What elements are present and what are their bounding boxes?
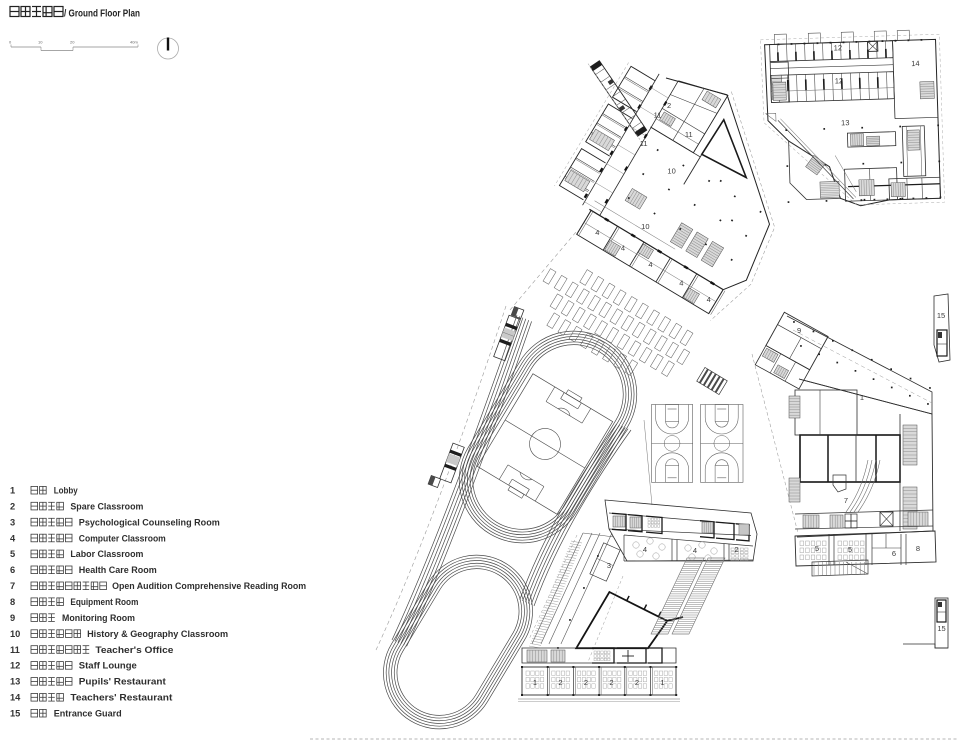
svg-text:2: 2 [734, 545, 738, 554]
svg-text:2: 2 [609, 678, 613, 687]
svg-text:Lobby: Lobby [54, 486, 79, 496]
svg-text:12: 12 [834, 43, 843, 52]
svg-text:4: 4 [693, 546, 697, 555]
svg-text:Spare Classroom: Spare Classroom [70, 501, 143, 511]
svg-text:5: 5 [815, 544, 819, 553]
svg-text:/ Ground Floor Plan: / Ground Floor Plan [64, 8, 140, 20]
svg-text:7: 7 [844, 496, 848, 505]
svg-text:5: 5 [848, 545, 852, 554]
svg-text:14: 14 [10, 693, 21, 703]
svg-text:14: 14 [911, 59, 920, 68]
svg-text:11: 11 [654, 110, 662, 119]
svg-text:10: 10 [641, 222, 649, 231]
svg-text:7: 7 [10, 581, 15, 591]
svg-text:4: 4 [643, 545, 647, 554]
svg-text:15: 15 [937, 311, 945, 320]
svg-text:1: 1 [860, 393, 864, 402]
svg-text:2: 2 [558, 678, 562, 687]
svg-text:1: 1 [660, 678, 664, 687]
svg-text:11: 11 [685, 130, 693, 139]
svg-text:4: 4 [679, 279, 683, 288]
svg-text:Pupils' Restaurant: Pupils' Restaurant [79, 677, 166, 687]
svg-text:Open Audition Comprehensive Re: Open Audition Comprehensive Reading Room [112, 581, 306, 591]
svg-text:12: 12 [835, 76, 844, 85]
svg-text:8: 8 [916, 544, 920, 553]
svg-text:Computer Classroom: Computer Classroom [79, 533, 166, 543]
svg-text:13: 13 [10, 677, 20, 687]
svg-text:4: 4 [595, 228, 599, 237]
svg-text:Labor Classroom: Labor Classroom [70, 549, 143, 559]
svg-text:13: 13 [841, 118, 850, 127]
svg-text:4: 4 [707, 295, 711, 304]
svg-text:10: 10 [10, 629, 20, 639]
svg-text:9: 9 [10, 613, 15, 623]
svg-text:Equipment Room: Equipment Room [70, 597, 138, 607]
svg-text:Staff Lounge: Staff Lounge [79, 661, 137, 671]
svg-text:20: 20 [70, 40, 75, 45]
svg-text:History & Geography Classroom: History & Geography Classroom [87, 629, 228, 639]
svg-text:15: 15 [937, 624, 945, 633]
svg-text:4: 4 [648, 260, 652, 269]
svg-text:6: 6 [10, 565, 15, 575]
svg-text:12: 12 [10, 661, 20, 671]
svg-text:10: 10 [38, 40, 43, 45]
svg-text:11: 11 [640, 139, 648, 148]
svg-text:15: 15 [10, 709, 20, 719]
svg-text:Health Care Room: Health Care Room [79, 565, 157, 575]
svg-text:2: 2 [10, 501, 15, 511]
svg-text:1: 1 [533, 678, 537, 687]
svg-text:6: 6 [892, 549, 896, 558]
svg-text:9: 9 [797, 326, 801, 335]
svg-text:3: 3 [607, 561, 611, 570]
svg-text:8: 8 [10, 597, 15, 607]
svg-text:1: 1 [10, 486, 15, 496]
svg-text:10: 10 [667, 167, 675, 176]
svg-text:Teachers' Restaurant: Teachers' Restaurant [70, 693, 172, 703]
svg-text:Entrance Guard: Entrance Guard [54, 709, 122, 719]
svg-text:Teacher's Office: Teacher's Office [95, 645, 173, 655]
svg-text:2: 2 [584, 678, 588, 687]
svg-text:4: 4 [10, 533, 16, 543]
svg-text:2: 2 [667, 101, 671, 110]
svg-text:11: 11 [10, 645, 20, 655]
svg-text:4: 4 [621, 244, 625, 253]
svg-text:2: 2 [635, 678, 639, 687]
svg-text:40m: 40m [130, 40, 138, 45]
svg-text:3: 3 [10, 517, 15, 527]
svg-text:5: 5 [10, 549, 15, 559]
svg-text:Monitoring Room: Monitoring Room [62, 613, 135, 623]
svg-text:Psychological Counseling Room: Psychological Counseling Room [79, 517, 220, 527]
